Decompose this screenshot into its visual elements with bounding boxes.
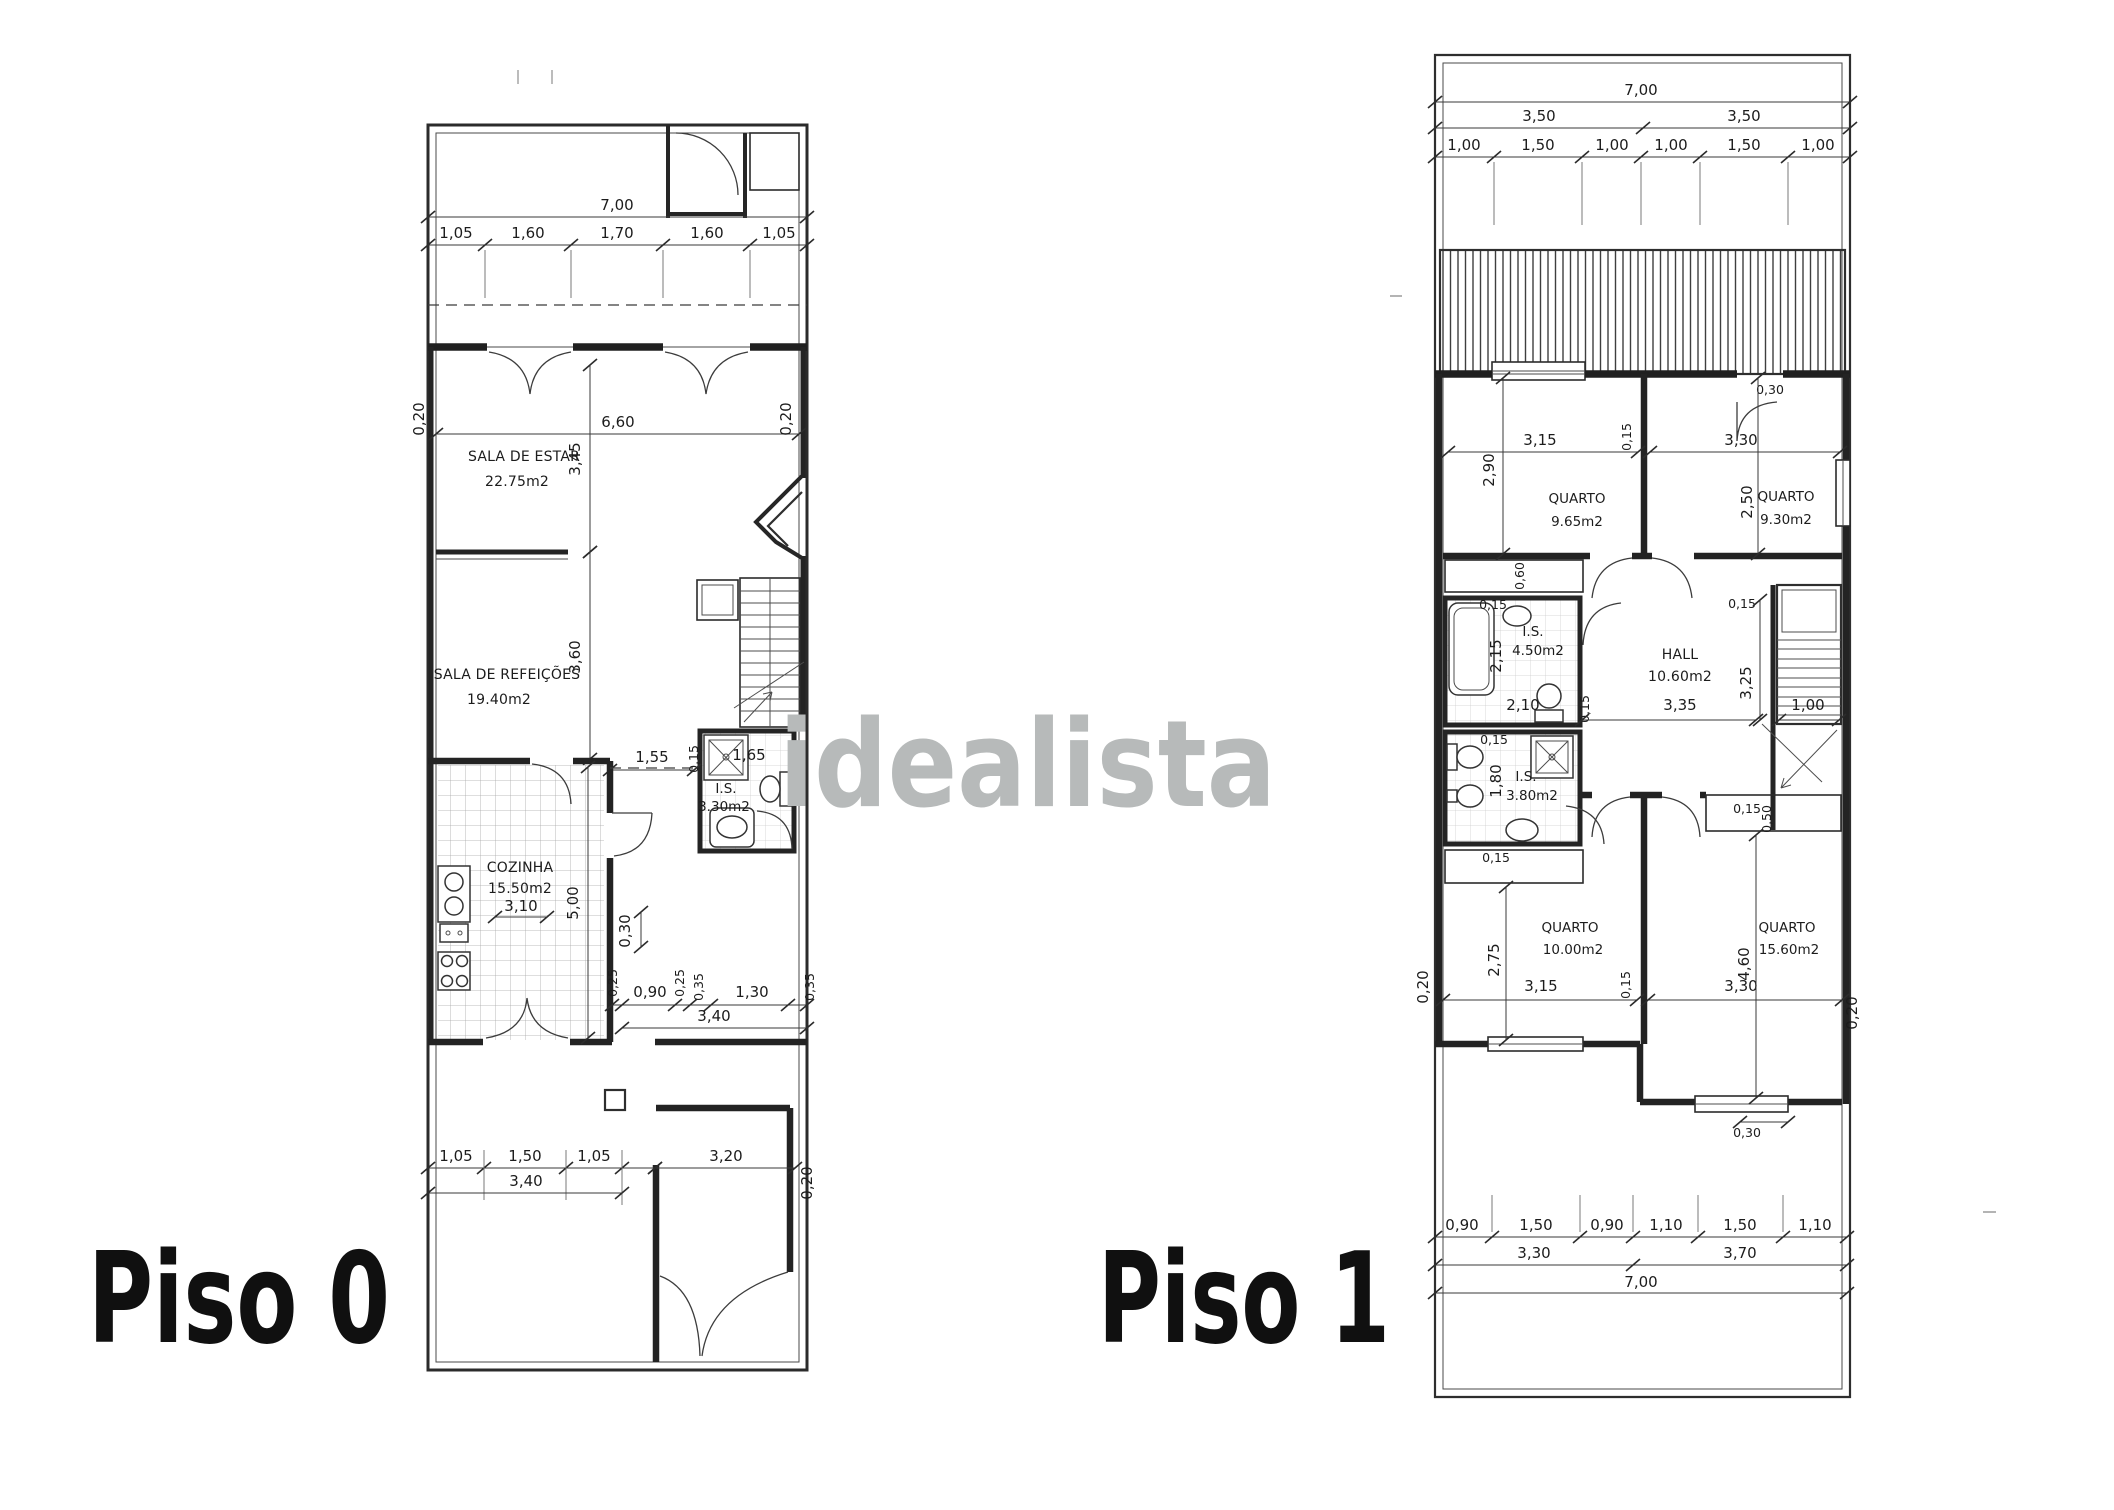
dim-bottom-sub: 3,40: [509, 1172, 542, 1190]
piso1-bathroom2: I.S. 3.80m2 0,15 1,80: [1445, 732, 1604, 844]
dim-wardrobe1: 0,60: [1512, 562, 1527, 590]
dim-bottom-seg: 0,90: [1445, 1216, 1478, 1234]
stairs-arrow: [744, 692, 772, 722]
dim-top-total: 7,00: [600, 196, 633, 214]
piso0-back-patio: 1,05 1,50 1,05 3,40 3,20 0,20: [421, 1090, 816, 1362]
room-label-sala-estar: SALA DE ESTAR: [468, 449, 580, 465]
dim-hall-seg: 1,30: [735, 983, 768, 1001]
dim-closet-depth: 0,50: [1759, 805, 1774, 833]
garage-door-swing: [660, 1272, 788, 1356]
dim-bottom-seg: 1,10: [1798, 1216, 1831, 1234]
room-label-quarto4: QUARTO: [1758, 920, 1815, 936]
dim-hall-seg: 0,35: [691, 973, 706, 1001]
piso1-wardrobe2: 0,15: [1445, 850, 1583, 883]
room-label-quarto3: QUARTO: [1541, 920, 1598, 936]
dim-hall-wall: 0,15: [1728, 596, 1756, 611]
room-area-quarto4: 15.60m2: [1759, 942, 1819, 958]
dim-top-seg: 1,50: [1727, 136, 1760, 154]
dim-is-width: 1,65: [732, 746, 765, 764]
room-area-is1: 4.50m2: [1512, 643, 1564, 659]
dim-hall-width: 3,35: [1663, 696, 1696, 714]
dim-wardrobe2: 0,15: [1482, 850, 1510, 865]
dim-top-seg: 1,05: [439, 224, 472, 242]
dim-top-seg: 1,00: [1654, 136, 1687, 154]
dim-hall-depth: 3,25: [1737, 666, 1755, 699]
dim-is1-width: 2,10: [1506, 696, 1539, 714]
room-area-cozinha: 15.50m2: [488, 881, 552, 897]
dim-is-left: 1,55: [635, 748, 668, 766]
stairs-arrow: [1781, 730, 1837, 788]
dim-terrace-door: 0,30: [1756, 382, 1784, 397]
fireplace: [756, 476, 802, 558]
piso1-top-dimensions: 7,00 3,50 3,50 1,00 1,50 1,00 1,00 1,50 …: [1428, 81, 1857, 225]
dim-top-seg: 1,50: [1521, 136, 1554, 154]
dim-q1-wall: 0,15: [1619, 423, 1634, 451]
dim-cozinha-width: 3,10: [504, 897, 537, 915]
dim-is-wall: 0,15: [686, 745, 701, 773]
piso1-stairs: 1,00: [1762, 585, 1846, 830]
piso1-plan: 7,00 3,50 3,50 1,00 1,50 1,00 1,00 1,50 …: [1390, 55, 1996, 1397]
dim-cozinha-depth: 5,00: [564, 886, 582, 919]
toilet: [1537, 684, 1561, 708]
idealista-watermark: idealista: [779, 696, 1276, 835]
piso1-bottom-dimensions: 0,90 1,50 0,90 1,10 1,50 1,10 3,30 3,70 …: [1428, 1195, 1854, 1299]
dim-bottom-sub: 3,30: [1517, 1244, 1550, 1262]
bedroom-door-swing: [1592, 558, 1692, 598]
room-area-quarto1: 9.65m2: [1551, 514, 1603, 530]
dim-is2-wall: 0,15: [1480, 732, 1508, 747]
room-area-hall: 10.60m2: [1648, 669, 1712, 685]
dim-hall-seg: 0,90: [633, 983, 666, 1001]
dim-q2-width: 3,30: [1724, 431, 1757, 449]
toilet-tank: [1447, 744, 1457, 770]
room-label-is: I.S.: [715, 781, 736, 797]
toilet: [760, 776, 780, 802]
dim-top-seg: 1,70: [600, 224, 633, 242]
room-label-is2: I.S.: [1515, 769, 1536, 785]
piso0-top-dimensions: 7,00 1,05 1,60 1,70 1,60 1,05: [421, 196, 814, 305]
room-area-quarto3: 10.00m2: [1543, 942, 1603, 958]
column: [605, 1090, 625, 1110]
piso0-room-labels: SALA DE ESTAR 22.75m2 SALA DE REFEIÇÕES …: [434, 449, 580, 708]
dim-bottom-seg: 1,50: [508, 1147, 541, 1165]
toilet: [1457, 746, 1483, 768]
dim-top-seg: 1,60: [690, 224, 723, 242]
dim-wall-left: 0,20: [410, 402, 428, 435]
dim-top-seg: 1,00: [1801, 136, 1834, 154]
room-label-hall: HALL: [1662, 647, 1699, 663]
room-area-is: 3.30m2: [698, 799, 750, 815]
dim-q4-depth: 4,60: [1735, 947, 1753, 980]
floor-title-piso0: Piso 0: [88, 1225, 390, 1372]
piso0-hall-dimensions: 0,25 0,90 0,25 0,35 1,30 0,35 3,40: [605, 969, 817, 1034]
sink: [1506, 819, 1538, 841]
dim-bottom-right: 3,20: [709, 1147, 742, 1165]
french-door-swing: [665, 352, 748, 394]
dim-bottom-wall: 0,20: [798, 1166, 816, 1199]
floor-title-piso1: Piso 1: [1098, 1225, 1390, 1372]
dim-top-seg: 1,60: [511, 224, 544, 242]
dim-estar-width: 6,60: [601, 413, 634, 431]
dim-wall-left: 0,20: [1414, 970, 1432, 1003]
dim-stairs-width: 1,00: [1791, 696, 1824, 714]
dim-top-half: 3,50: [1727, 107, 1760, 125]
floorplan-drawing: 7,00 1,05 1,60 1,70 1,60 1,05 6,60: [0, 0, 2114, 1510]
dim-bottom-seg: 1,50: [1519, 1216, 1552, 1234]
dim-wall-right: 0,20: [777, 402, 795, 435]
dim-top-total: 7,00: [1624, 81, 1657, 99]
bathroom-door-swing: [1583, 603, 1621, 645]
room-area-sala-estar: 22.75m2: [485, 474, 549, 490]
piso0-plan: 7,00 1,05 1,60 1,70 1,60 1,05 6,60: [410, 70, 817, 1370]
dim-q3-width: 3,15: [1524, 977, 1557, 995]
room-area-sala-refeicoes: 19.40m2: [467, 692, 531, 708]
dim-bottom-seg: 1,10: [1649, 1216, 1682, 1234]
dim-hall-total: 3,40: [697, 1007, 730, 1025]
survey-marks: [518, 70, 552, 84]
dim-q1-depth: 2,90: [1480, 453, 1498, 486]
dim-top-half: 3,50: [1522, 107, 1555, 125]
dim-bottom-door: 0,30: [1733, 1125, 1761, 1140]
dim-q3-wall: 0,15: [1618, 971, 1633, 999]
room-area-is2: 3.80m2: [1506, 788, 1558, 804]
room-label-sala-refeicoes: SALA DE REFEIÇÕES: [434, 666, 580, 683]
dim-hall-step: 0,30: [616, 914, 634, 947]
dim-bottom-seg: 0,90: [1590, 1216, 1623, 1234]
dim-top-seg: 1,00: [1447, 136, 1480, 154]
piso0-entry-nook: [668, 125, 799, 218]
piso1-bathroom1: I.S. 4.50m2 0,15 2,15 2,10 0,15: [1445, 597, 1621, 725]
room-label-quarto1: QUARTO: [1548, 491, 1605, 507]
dim-q3-depth: 2,75: [1485, 943, 1503, 976]
kitchen-appliance: [440, 924, 468, 942]
kitchen-counter-sink: [438, 866, 470, 922]
piso1-hall: HALL 10.60m2 3,35 3,25 0,15: [1575, 594, 1767, 726]
dim-q1-width: 3,15: [1523, 431, 1556, 449]
dim-q2-depth: 2,50: [1738, 485, 1756, 518]
dim-closet-wall: 0,15: [1733, 801, 1761, 816]
french-door-swing: [489, 352, 571, 394]
dim-hall-seg: 0,35: [802, 973, 817, 1001]
dim-top-seg: 1,05: [762, 224, 795, 242]
dim-hall-seg: 0,25: [605, 969, 620, 997]
dim-hall-seg: 0,25: [672, 969, 687, 997]
dim-is2-depth: 1,80: [1487, 764, 1505, 797]
dim-bottom-sub: 3,70: [1723, 1244, 1756, 1262]
dim-bottom-seg: 1,50: [1723, 1216, 1756, 1234]
entry-door-swing: [676, 133, 738, 195]
terrace-decking: [1440, 250, 1845, 374]
dim-wall-right: 0,20: [1843, 996, 1861, 1029]
room-label-cozinha: COZINHA: [487, 860, 554, 876]
hall-door-swing: [612, 813, 652, 856]
floorplan-canvas: 7,00 1,05 1,60 1,70 1,60 1,05 6,60: [0, 0, 2114, 1510]
dim-bottom-total: 7,00: [1624, 1273, 1657, 1291]
sink: [1503, 606, 1531, 626]
dim-bottom-seg: 1,05: [577, 1147, 610, 1165]
dim-bottom-seg: 1,05: [439, 1147, 472, 1165]
piso0-bathroom: I.S. 3.30m2 1,55 0,15 1,65: [603, 731, 794, 851]
room-label-quarto2: QUARTO: [1757, 489, 1814, 505]
bidet: [1457, 785, 1483, 807]
dim-is1-wall-top: 0,15: [1479, 597, 1507, 612]
room-area-quarto2: 9.30m2: [1760, 512, 1812, 528]
room-label-is1: I.S.: [1522, 624, 1543, 640]
dim-top-seg: 1,00: [1595, 136, 1628, 154]
dim-is1-depth: 2,15: [1487, 639, 1505, 672]
bidet-base: [1447, 790, 1457, 802]
